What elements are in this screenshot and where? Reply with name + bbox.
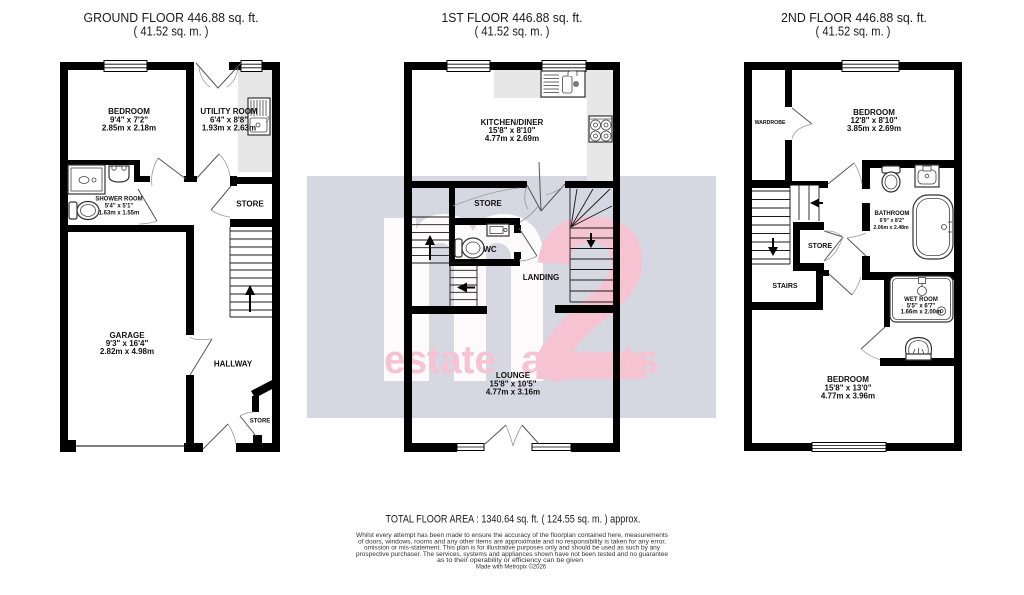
svg-text:( 41.52 sq. m. ): ( 41.52 sq. m. ) [475, 24, 550, 39]
svg-text:5'4" x 5'1": 5'4" x 5'1" [105, 204, 134, 210]
svg-text:STORE: STORE [236, 200, 264, 209]
svg-text:4.77m x 2.69m: 4.77m x 2.69m [485, 134, 539, 143]
svg-text:3.85m x 2.69m: 3.85m x 2.69m [847, 124, 901, 133]
svg-text:2.82m x 4.98m: 2.82m x 4.98m [100, 347, 154, 356]
svg-text:( 41.52 sq. m. ): ( 41.52 sq. m. ) [816, 24, 891, 39]
svg-text:agents: agents [521, 338, 659, 382]
svg-text:1.63m x 1.55m: 1.63m x 1.55m [99, 211, 140, 217]
svg-text:STORE: STORE [808, 243, 832, 250]
svg-text:2.85m x 2.18m: 2.85m x 2.18m [102, 124, 156, 133]
svg-text:( 41.52 sq. m. ): ( 41.52 sq. m. ) [134, 24, 209, 39]
svg-text:6'9" x 8'2": 6'9" x 8'2" [880, 218, 905, 224]
svg-text:STAIRS: STAIRS [772, 283, 797, 290]
svg-text:HALLWAY: HALLWAY [214, 360, 253, 369]
svg-text:WC: WC [483, 245, 497, 254]
svg-text:LANDING: LANDING [523, 273, 559, 282]
svg-text:1.66m x 2.00m: 1.66m x 2.00m [901, 310, 942, 316]
svg-text:STORE: STORE [474, 199, 502, 208]
svg-text:2: 2 [529, 170, 654, 429]
svg-text:4.77m x 3.96m: 4.77m x 3.96m [821, 392, 875, 401]
svg-text:BATHROOM: BATHROOM [875, 211, 910, 217]
svg-text:WET ROOM: WET ROOM [904, 297, 938, 303]
svg-text:2.06m x 2.48m: 2.06m x 2.48m [873, 225, 909, 231]
svg-text:Made with Metropix ©2026: Made with Metropix ©2026 [476, 564, 547, 571]
svg-text:SHOWER ROOM: SHOWER ROOM [95, 197, 142, 203]
svg-text:4.77m x 3.16m: 4.77m x 3.16m [486, 388, 540, 397]
svg-text:TOTAL FLOOR AREA : 1340.64 sq.: TOTAL FLOOR AREA : 1340.64 sq. ft. ( 124… [386, 514, 641, 526]
svg-text:estate: estate [384, 338, 496, 382]
svg-text:WARDROBE: WARDROBE [755, 120, 786, 126]
svg-text:1.93m x 2.63m: 1.93m x 2.63m [202, 124, 256, 133]
svg-text:STORE: STORE [250, 419, 271, 425]
